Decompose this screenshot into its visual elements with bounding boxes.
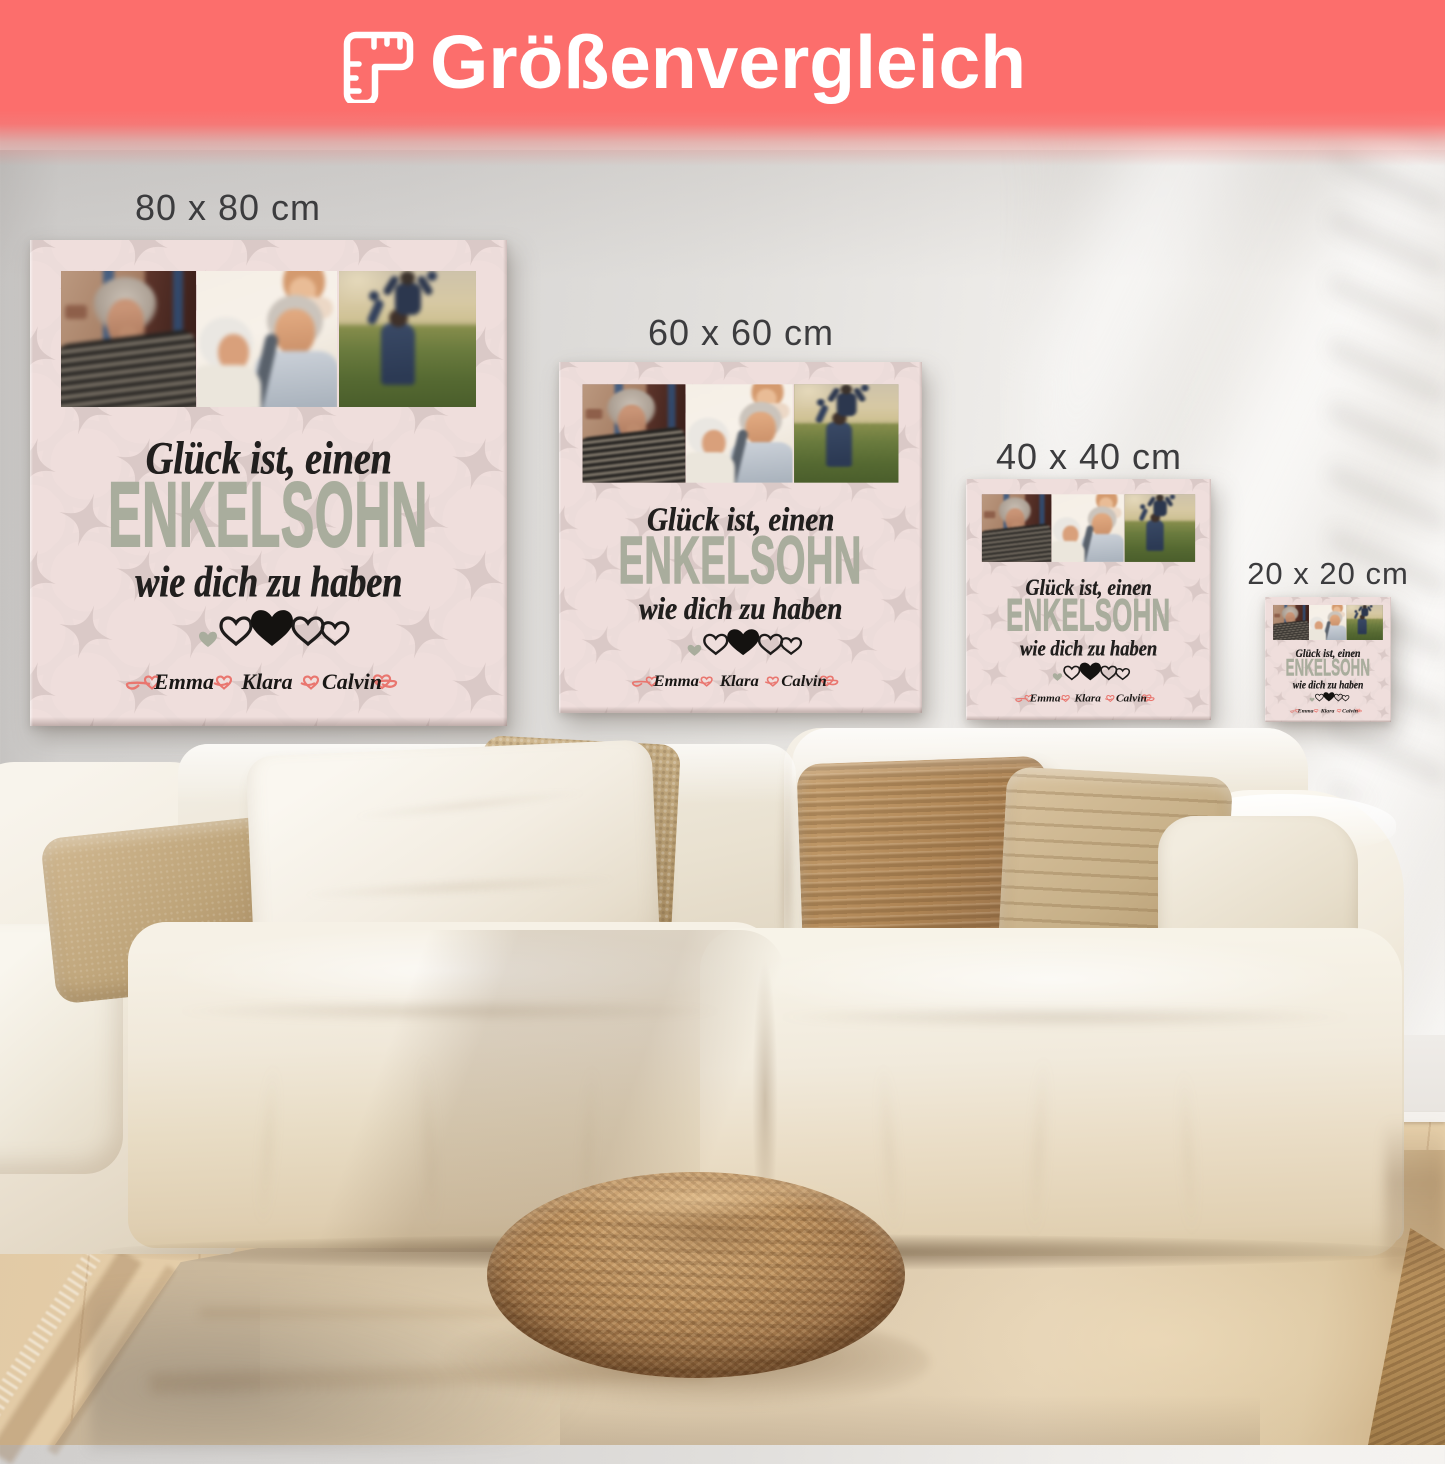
svg-text:Klara: Klara <box>1074 693 1102 705</box>
svg-text:Emma: Emma <box>153 669 214 694</box>
svg-text:Calvin: Calvin <box>781 672 827 690</box>
svg-text:Calvin: Calvin <box>322 669 382 694</box>
svg-text:Emma: Emma <box>1029 693 1061 705</box>
svg-text:Klara: Klara <box>240 669 292 694</box>
svg-text:Emma: Emma <box>652 672 699 690</box>
svg-text:Klara: Klara <box>1320 709 1335 715</box>
svg-text:Klara: Klara <box>719 672 759 690</box>
svg-text:Calvin: Calvin <box>1116 693 1147 705</box>
svg-text:Emma: Emma <box>1297 709 1314 715</box>
svg-text:Calvin: Calvin <box>1342 709 1358 715</box>
